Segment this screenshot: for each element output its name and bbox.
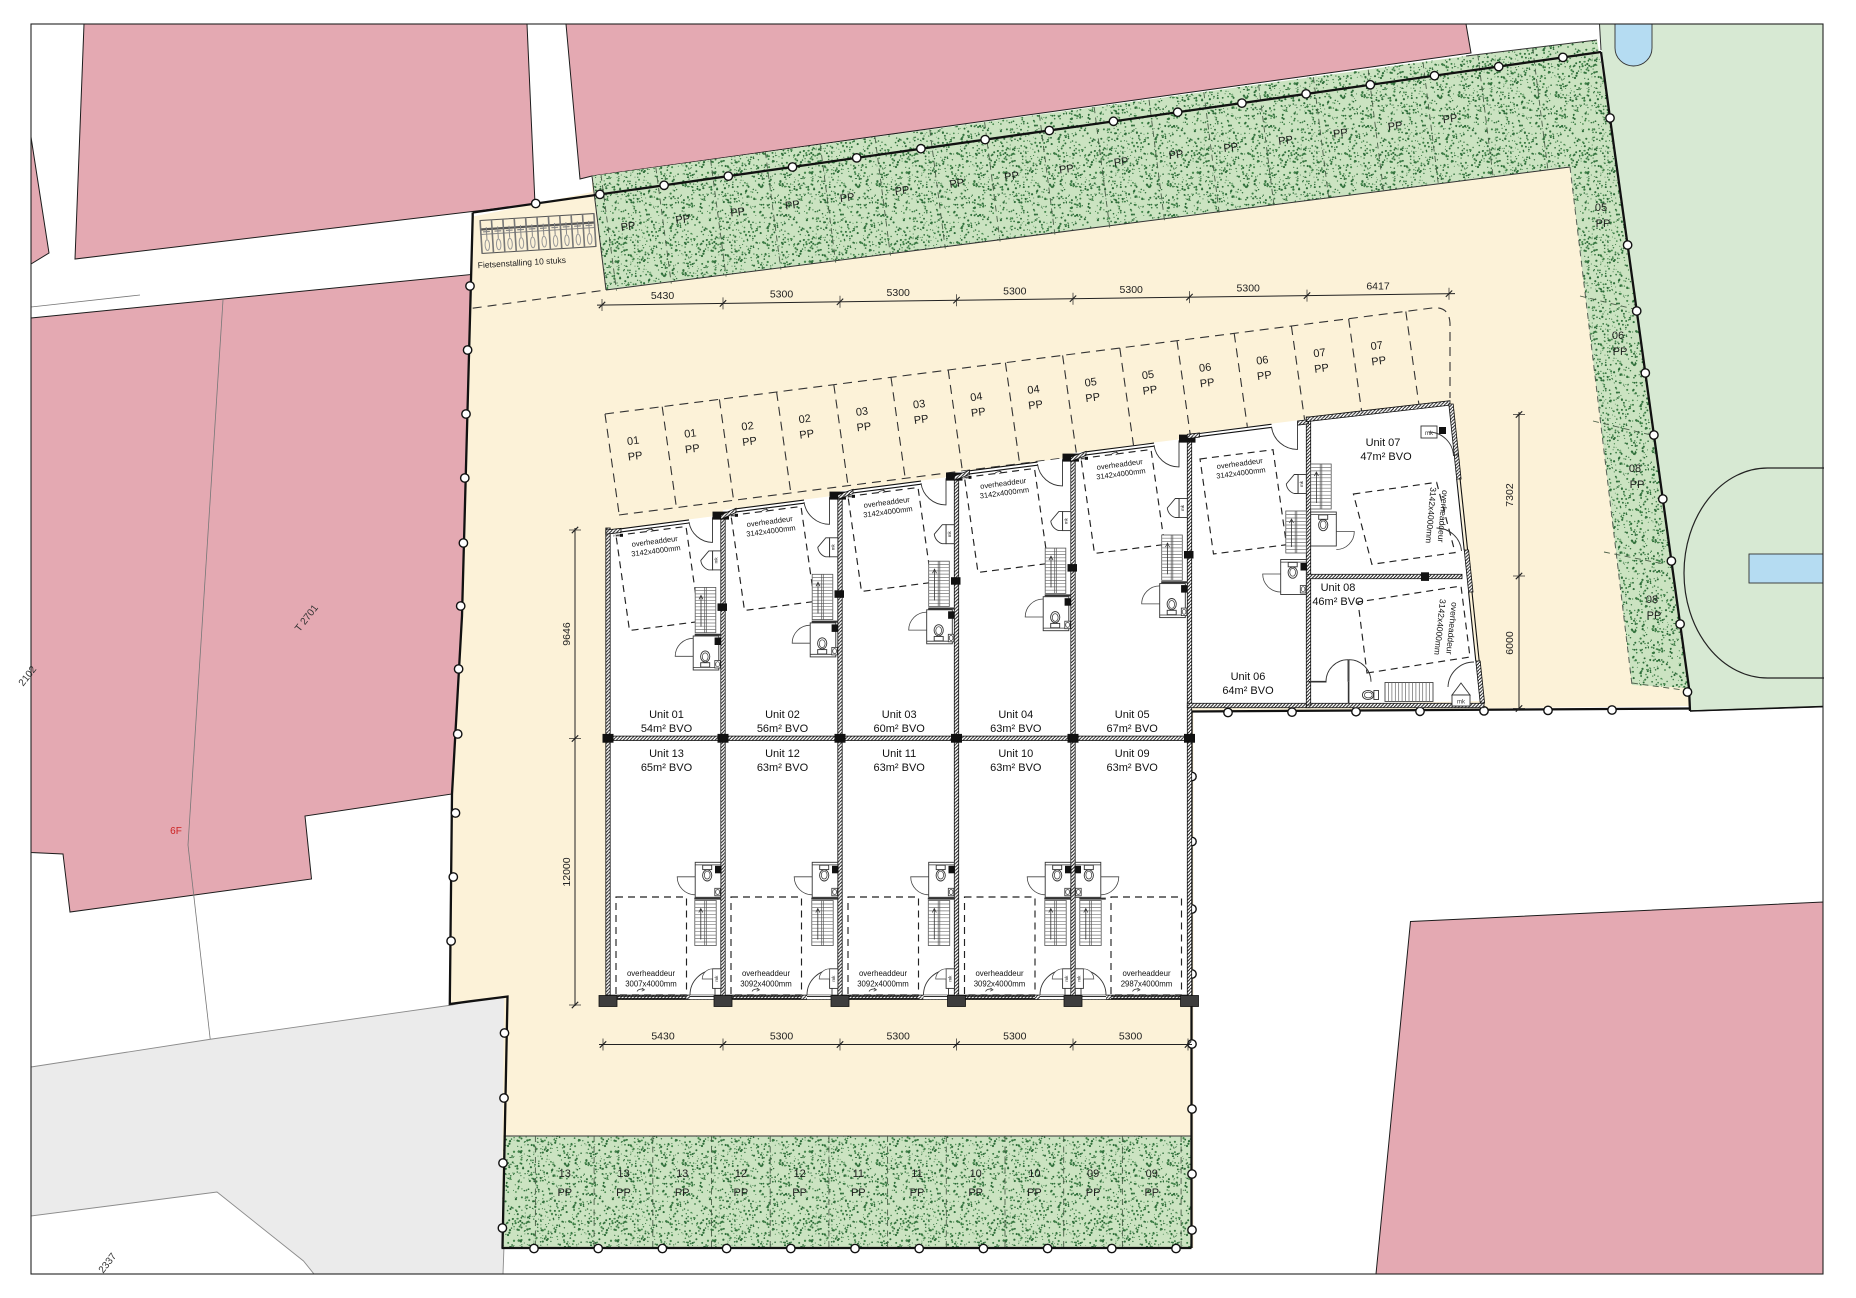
svg-text:PP: PP [1199, 377, 1215, 391]
svg-text:Unit 10: Unit 10 [998, 748, 1033, 760]
svg-text:60m² BVO: 60m² BVO [874, 723, 926, 735]
svg-text:5430: 5430 [651, 290, 675, 302]
svg-text:mk: mk [713, 557, 718, 564]
svg-text:PP: PP [910, 1187, 925, 1199]
svg-text:PP: PP [970, 406, 986, 420]
svg-text:PP: PP [620, 220, 636, 234]
svg-text:13: 13 [559, 1168, 571, 1180]
svg-text:06: 06 [1256, 354, 1270, 367]
svg-text:PP: PP [1647, 610, 1662, 622]
svg-text:09: 09 [1146, 1168, 1158, 1180]
svg-text:mk: mk [1077, 975, 1082, 982]
svg-text:12000: 12000 [561, 857, 573, 886]
svg-text:5300: 5300 [1003, 286, 1027, 298]
svg-text:63m² BVO: 63m² BVO [990, 723, 1042, 735]
svg-text:12: 12 [735, 1168, 747, 1180]
svg-text:PP: PP [799, 428, 815, 442]
svg-text:5300: 5300 [1237, 282, 1261, 294]
svg-text:5300: 5300 [1119, 1031, 1143, 1043]
svg-text:overheaddeur: overheaddeur [627, 969, 676, 978]
svg-text:Unit 08: Unit 08 [1321, 582, 1356, 594]
svg-text:05: 05 [1595, 202, 1607, 214]
svg-text:Unit 12: Unit 12 [765, 748, 800, 760]
svg-text:06: 06 [1612, 330, 1624, 342]
svg-text:mk: mk [1180, 504, 1185, 511]
svg-text:PP: PP [1256, 369, 1272, 383]
svg-text:Unit 06: Unit 06 [1231, 671, 1266, 683]
svg-text:PP: PP [1113, 156, 1129, 170]
svg-text:PP: PP [1278, 134, 1294, 148]
svg-text:PP: PP [1004, 170, 1020, 184]
svg-text:mk: mk [948, 975, 953, 982]
svg-text:04: 04 [970, 391, 984, 404]
svg-text:PP: PP [627, 450, 643, 464]
svg-text:PP: PP [1028, 399, 1044, 413]
svg-text:6000: 6000 [1504, 631, 1516, 655]
svg-text:Unit 07: Unit 07 [1366, 437, 1401, 449]
svg-text:3092x4000mm: 3092x4000mm [740, 979, 792, 988]
svg-text:PP: PP [730, 206, 746, 220]
svg-text:13: 13 [617, 1168, 629, 1180]
svg-text:PP: PP [913, 413, 929, 427]
svg-text:12: 12 [793, 1168, 805, 1180]
svg-text:6F: 6F [170, 826, 182, 837]
svg-text:63m² BVO: 63m² BVO [757, 762, 809, 774]
svg-text:09: 09 [1087, 1168, 1099, 1180]
svg-text:63m² BVO: 63m² BVO [874, 762, 926, 774]
svg-text:Unit 03: Unit 03 [882, 709, 917, 721]
svg-text:5430: 5430 [651, 1031, 675, 1043]
svg-text:PP: PP [1027, 1187, 1042, 1199]
svg-text:PP: PP [1371, 355, 1387, 369]
svg-text:67m² BVO: 67m² BVO [1107, 723, 1159, 735]
svg-text:11: 11 [911, 1168, 922, 1180]
svg-text:06: 06 [1198, 361, 1212, 374]
svg-text:PP: PP [1058, 163, 1074, 177]
svg-text:64m² BVO: 64m² BVO [1222, 685, 1274, 697]
svg-text:PP: PP [1142, 384, 1158, 398]
svg-text:PP: PP [1223, 141, 1239, 155]
svg-text:03: 03 [912, 398, 926, 411]
svg-text:04: 04 [1027, 383, 1041, 396]
svg-text:PP: PP [1085, 391, 1101, 405]
svg-text:PP: PP [1332, 127, 1348, 141]
svg-text:46m² BVO: 46m² BVO [1312, 596, 1364, 608]
svg-text:02: 02 [741, 420, 755, 433]
svg-text:2987x4000mm: 2987x4000mm [1121, 979, 1173, 988]
svg-text:mk: mk [1064, 975, 1069, 982]
svg-text:7302: 7302 [1504, 483, 1516, 507]
svg-text:Unit 09: Unit 09 [1115, 748, 1150, 760]
svg-text:3092x4000mm: 3092x4000mm [974, 979, 1026, 988]
svg-text:63m² BVO: 63m² BVO [1107, 762, 1159, 774]
svg-text:PP: PP [856, 421, 872, 435]
svg-text:PP: PP [1442, 112, 1458, 126]
svg-text:10: 10 [1028, 1168, 1040, 1180]
svg-text:07: 07 [1313, 347, 1327, 360]
svg-text:mk: mk [830, 544, 835, 551]
svg-text:PP: PP [1613, 346, 1628, 358]
svg-text:PP: PP [1144, 1187, 1159, 1199]
svg-text:Unit 13: Unit 13 [649, 748, 684, 760]
svg-text:mk: mk [831, 975, 836, 982]
svg-text:01: 01 [684, 427, 698, 440]
svg-text:3092x4000mm: 3092x4000mm [857, 979, 909, 988]
svg-text:07: 07 [1370, 339, 1384, 352]
svg-text:PP: PP [1630, 479, 1645, 491]
svg-text:mk: mk [1063, 517, 1068, 524]
svg-text:11: 11 [853, 1168, 864, 1180]
svg-text:PP: PP [1596, 218, 1611, 230]
svg-text:overheaddeur: overheaddeur [742, 969, 791, 978]
svg-text:5300: 5300 [1003, 1031, 1027, 1043]
svg-text:PP: PP [949, 177, 965, 191]
svg-text:PP: PP [675, 1187, 690, 1199]
svg-text:PP: PP [734, 1187, 749, 1199]
svg-text:PP: PP [894, 184, 910, 198]
svg-text:mk: mk [1457, 700, 1466, 706]
svg-text:47m² BVO: 47m² BVO [1360, 451, 1412, 463]
svg-text:10: 10 [970, 1168, 982, 1180]
svg-text:5300: 5300 [770, 289, 794, 301]
svg-text:03: 03 [855, 405, 869, 418]
svg-text:08: 08 [1646, 594, 1658, 606]
svg-text:Unit 01: Unit 01 [649, 709, 684, 721]
svg-text:01: 01 [626, 435, 640, 448]
svg-text:13: 13 [676, 1168, 688, 1180]
svg-text:PP: PP [1086, 1187, 1101, 1199]
svg-text:PP: PP [742, 435, 758, 449]
svg-text:08: 08 [1629, 463, 1641, 475]
svg-text:54m² BVO: 54m² BVO [641, 723, 693, 735]
svg-text:PP: PP [792, 1187, 807, 1199]
svg-text:6417: 6417 [1366, 281, 1390, 293]
svg-text:63m² BVO: 63m² BVO [990, 762, 1042, 774]
svg-text:PP: PP [1314, 362, 1330, 376]
svg-text:mk: mk [947, 530, 952, 537]
svg-text:PP: PP [1387, 120, 1403, 134]
svg-text:05: 05 [1141, 369, 1155, 382]
svg-text:5300: 5300 [1120, 284, 1144, 296]
svg-text:5300: 5300 [887, 1031, 911, 1043]
svg-text:Unit 02: Unit 02 [765, 709, 800, 721]
svg-text:overheaddeur: overheaddeur [1122, 969, 1171, 978]
svg-text:PP: PP [784, 199, 800, 213]
svg-text:PP: PP [675, 213, 691, 227]
svg-text:9646: 9646 [561, 622, 573, 646]
svg-text:Unit 04: Unit 04 [998, 709, 1033, 721]
svg-text:PP: PP [1168, 148, 1184, 162]
svg-text:PP: PP [616, 1187, 631, 1199]
svg-text:mk: mk [1299, 480, 1304, 487]
svg-text:PP: PP [851, 1187, 866, 1199]
svg-text:3007x4000mm: 3007x4000mm [625, 979, 677, 988]
svg-text:5300: 5300 [887, 287, 911, 299]
svg-text:PP: PP [684, 442, 700, 456]
svg-text:PP: PP [557, 1187, 572, 1199]
svg-text:mk: mk [714, 975, 719, 982]
svg-text:5300: 5300 [770, 1031, 794, 1043]
svg-text:PP: PP [839, 191, 855, 205]
svg-text:overheaddeur: overheaddeur [975, 969, 1024, 978]
svg-text:56m² BVO: 56m² BVO [757, 723, 809, 735]
svg-text:Unit 05: Unit 05 [1115, 709, 1150, 721]
svg-text:02: 02 [798, 413, 812, 426]
svg-text:overheaddeur: overheaddeur [859, 969, 908, 978]
svg-text:65m² BVO: 65m² BVO [641, 762, 693, 774]
svg-text:05: 05 [1084, 376, 1098, 389]
svg-text:PP: PP [968, 1187, 983, 1199]
svg-text:Unit 11: Unit 11 [882, 748, 916, 760]
